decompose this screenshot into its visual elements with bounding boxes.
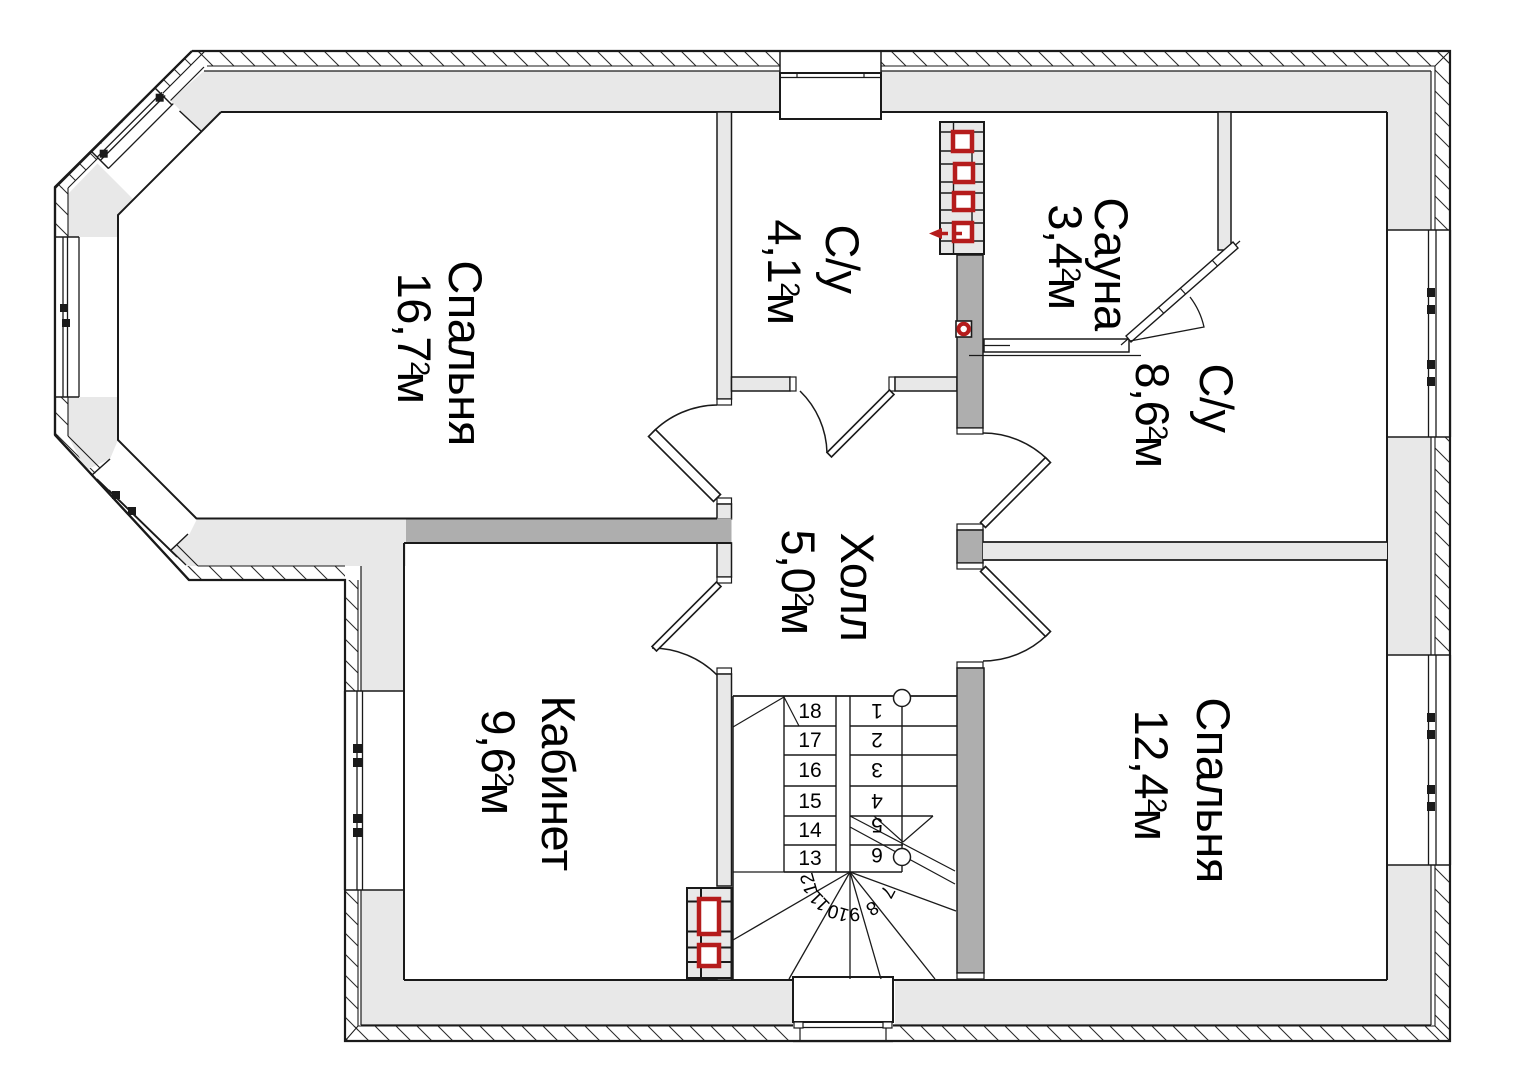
svg-text:12,42м: 12,42м xyxy=(1125,710,1178,841)
svg-text:3,42м: 3,42м xyxy=(1039,204,1092,309)
svg-text:С/у: С/у xyxy=(816,225,869,295)
svg-text:16: 16 xyxy=(798,759,821,782)
svg-text:5,02м: 5,02м xyxy=(772,529,825,634)
svg-text:13: 13 xyxy=(798,847,821,870)
svg-text:Спальня: Спальня xyxy=(1187,697,1240,882)
svg-text:2: 2 xyxy=(871,728,883,751)
svg-text:Кабинет: Кабинет xyxy=(532,695,585,870)
svg-text:6: 6 xyxy=(871,843,883,866)
svg-text:С/у: С/у xyxy=(1190,364,1243,434)
svg-text:3: 3 xyxy=(871,758,883,781)
svg-text:14: 14 xyxy=(798,819,822,842)
svg-text:Холл: Холл xyxy=(831,533,884,642)
svg-text:17: 17 xyxy=(798,729,821,752)
svg-text:9,62м: 9,62м xyxy=(472,709,525,814)
svg-text:1: 1 xyxy=(871,699,883,722)
svg-text:18: 18 xyxy=(798,700,821,723)
svg-text:15: 15 xyxy=(798,790,821,813)
svg-text:4: 4 xyxy=(871,789,883,812)
svg-text:4,12м: 4,12м xyxy=(758,219,811,324)
svg-text:Спальня: Спальня xyxy=(439,260,492,445)
svg-text:5: 5 xyxy=(871,813,883,836)
svg-text:8,62м: 8,62м xyxy=(1126,362,1179,467)
svg-text:16,72м: 16,72м xyxy=(388,273,441,404)
